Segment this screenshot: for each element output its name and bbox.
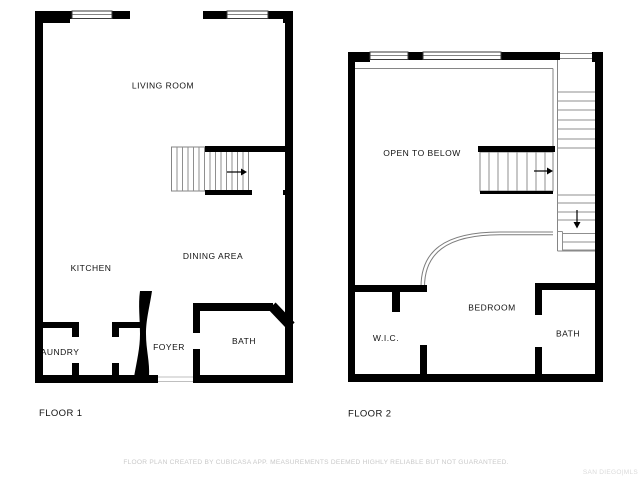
- room-label-bath-floor1: BATH: [232, 336, 256, 346]
- wall-left: [35, 11, 43, 383]
- background: [0, 0, 640, 480]
- bath-top-wall: [200, 303, 273, 311]
- laundry-top-wall: [43, 322, 79, 328]
- stair-upper-wall: [478, 146, 555, 152]
- bath-top-wall: [535, 283, 603, 290]
- wall-bottom-right: [193, 375, 293, 383]
- wic-divider-wall: [420, 345, 427, 374]
- wall-bottom: [348, 374, 603, 382]
- closet-door-stub-top: [112, 328, 119, 337]
- floor-plan-page: LIVING ROOM KITCHEN DINING AREA LAUNDRY …: [0, 0, 640, 480]
- floor2-label: FLOOR 2: [348, 409, 391, 420]
- stair-lower-wall-stub: [283, 190, 293, 195]
- room-label-open-to-below: OPEN TO BELOW: [383, 148, 461, 158]
- disclaimer-text: FLOOR PLAN CREATED BY CUBICASA APP. MEAS…: [123, 459, 508, 466]
- bath-left-wall-lower: [535, 347, 542, 374]
- floor1-label: FLOOR 1: [39, 408, 82, 419]
- laundry-door-stub-bottom: [72, 363, 79, 375]
- closet-top-wall: [112, 322, 140, 328]
- bath-left-wall-lower: [193, 349, 200, 375]
- wall-left: [348, 52, 355, 382]
- room-label-living-room: LIVING ROOM: [132, 81, 194, 91]
- bath-left-wall-upper: [535, 283, 542, 315]
- room-label-kitchen: KITCHEN: [71, 263, 112, 273]
- stair-upper-wall: [205, 146, 293, 152]
- room-label-foyer: FOYER: [153, 342, 185, 352]
- bedroom-wic-top-wall: [348, 285, 427, 292]
- bath-left-wall-upper: [193, 303, 200, 333]
- room-label-dining-area: DINING AREA: [183, 251, 243, 261]
- floor-plan-canvas: LIVING ROOM KITCHEN DINING AREA LAUNDRY …: [0, 0, 640, 480]
- wall-right: [595, 52, 603, 382]
- laundry-door-stub-top: [72, 328, 79, 337]
- staircase-floor1: [172, 147, 249, 191]
- staircase-floor2: [480, 152, 553, 194]
- room-label-bath-floor2: BATH: [556, 329, 580, 339]
- stair-lower-wall: [205, 190, 252, 195]
- stair-bottom-edge: [480, 191, 553, 194]
- closet-door-stub-bottom: [112, 363, 119, 375]
- room-label-wic: W.I.C.: [373, 333, 399, 343]
- room-label-bedroom: BEDROOM: [468, 303, 515, 313]
- watermark-text: SAN DIEGO|MLS: [583, 469, 638, 476]
- wic-closet-stub: [392, 292, 400, 312]
